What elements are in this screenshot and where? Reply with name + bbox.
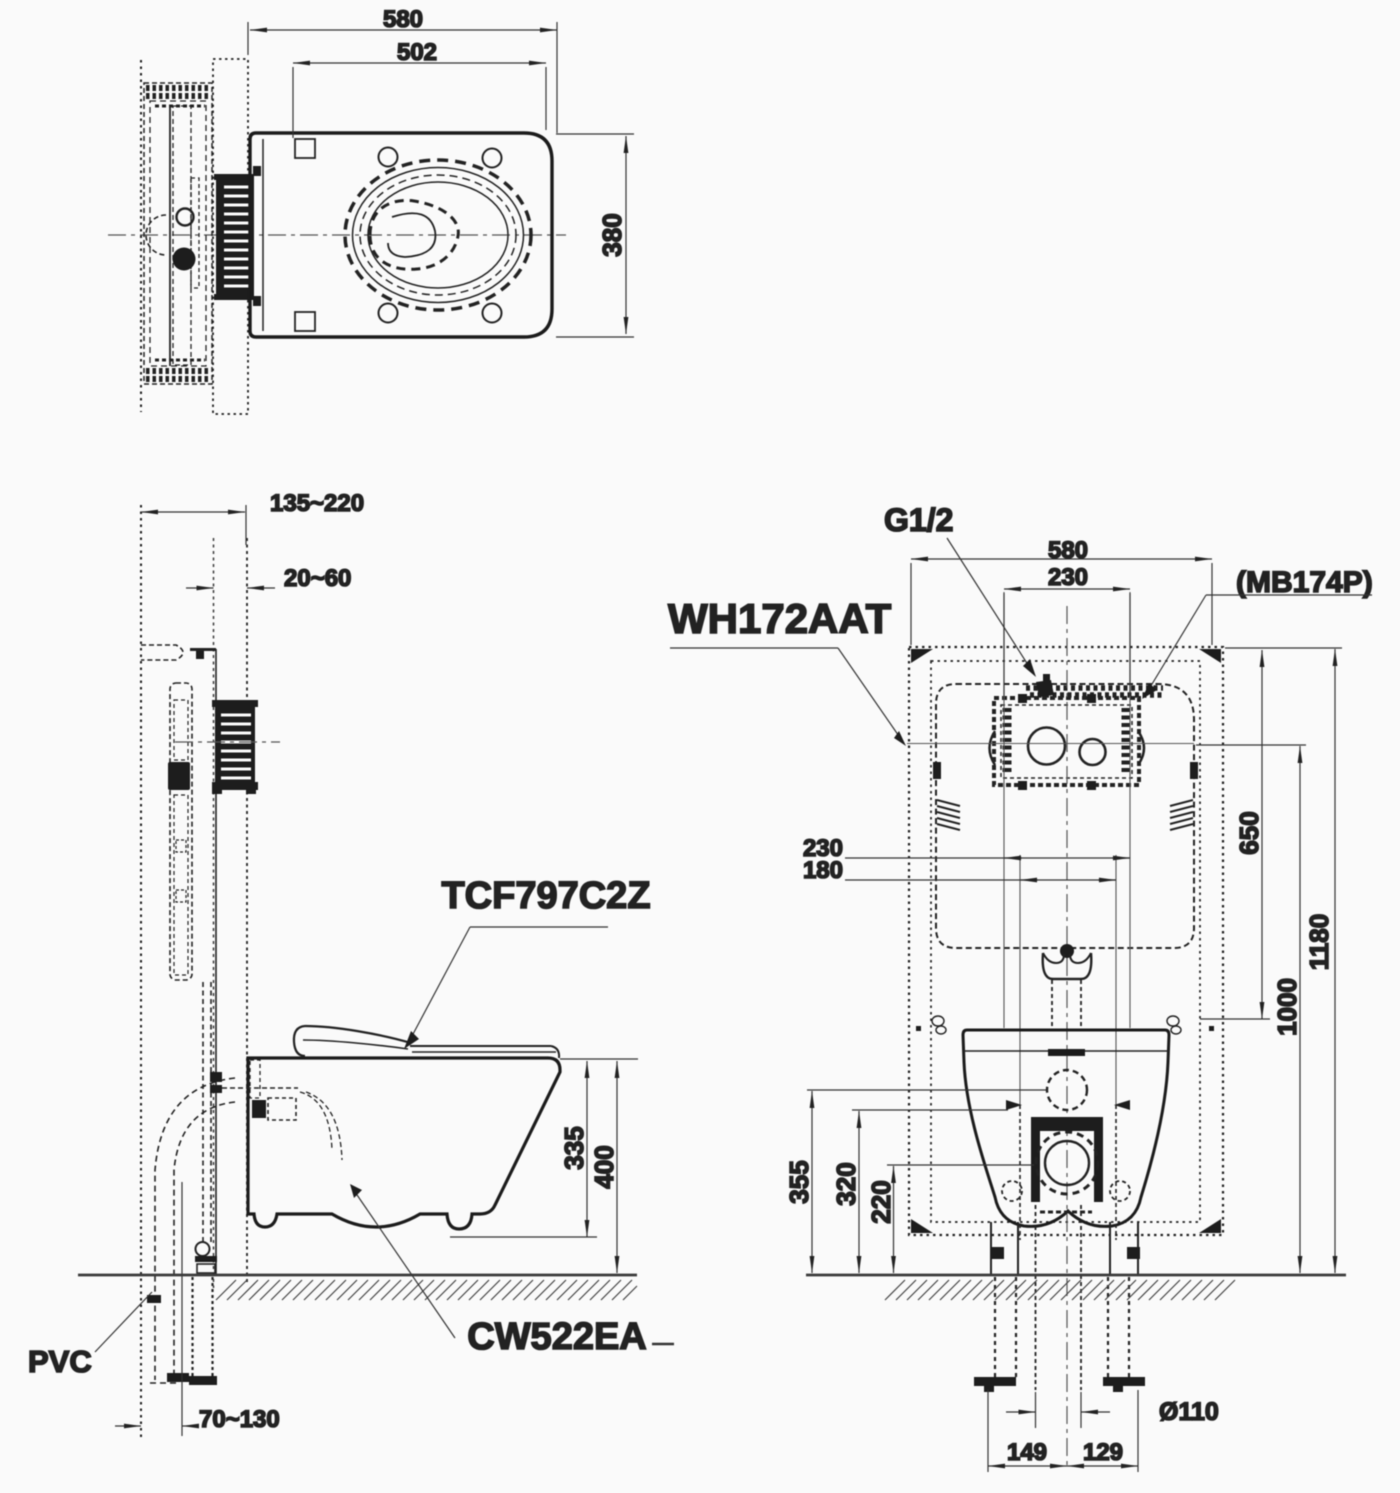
svg-text:PVC: PVC xyxy=(28,1344,92,1379)
svg-text:380: 380 xyxy=(597,213,627,256)
svg-text:135~220: 135~220 xyxy=(270,490,364,517)
svg-text:502: 502 xyxy=(397,39,437,66)
svg-text:1180: 1180 xyxy=(1304,914,1334,970)
svg-text:580: 580 xyxy=(1048,537,1088,564)
svg-text:1000: 1000 xyxy=(1272,978,1302,1036)
svg-text:180: 180 xyxy=(803,857,843,884)
svg-text:WH172AAT: WH172AAT xyxy=(668,595,892,642)
svg-text:220: 220 xyxy=(866,1180,896,1223)
svg-text:400: 400 xyxy=(589,1145,619,1188)
svg-text:Ø110: Ø110 xyxy=(1159,1398,1219,1426)
svg-text:TCF797C2Z: TCF797C2Z xyxy=(441,875,650,917)
svg-text:335: 335 xyxy=(559,1126,589,1169)
svg-text:149: 149 xyxy=(1007,1439,1047,1466)
svg-text:355: 355 xyxy=(784,1160,814,1203)
svg-text:129: 129 xyxy=(1083,1439,1123,1466)
svg-text:230: 230 xyxy=(1048,564,1088,591)
svg-text:CW522EA: CW522EA xyxy=(467,1316,647,1358)
svg-text:580: 580 xyxy=(383,6,423,33)
svg-text:650: 650 xyxy=(1234,811,1264,854)
svg-text:20~60: 20~60 xyxy=(284,565,351,592)
svg-text:(MB174P): (MB174P) xyxy=(1236,566,1373,599)
svg-text:G1/2: G1/2 xyxy=(884,502,953,538)
svg-text:320: 320 xyxy=(831,1162,861,1205)
svg-text:70~130: 70~130 xyxy=(199,1406,280,1433)
